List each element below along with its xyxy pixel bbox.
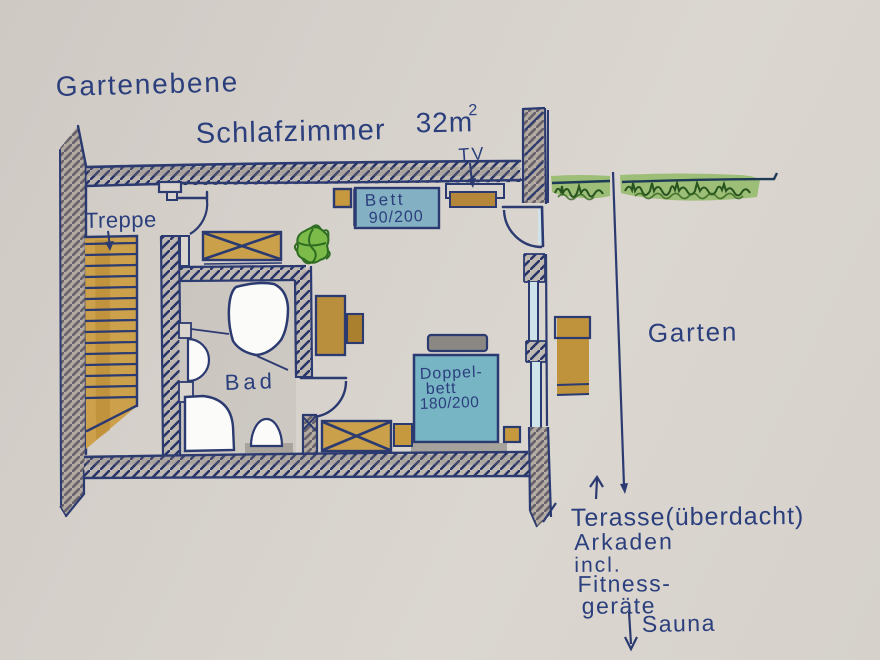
svg-text:Garten: Garten [648, 316, 739, 348]
svg-text:Arkaden: Arkaden [574, 528, 674, 555]
svg-text:Bett: Bett [364, 190, 405, 210]
svg-text:Terasse(überdacht): Terasse(überdacht) [571, 502, 805, 532]
svg-text:32m: 32m [415, 106, 473, 138]
svg-text:Treppe: Treppe [85, 207, 157, 233]
svg-text:90/200: 90/200 [369, 208, 424, 227]
svg-text:Gartenebene: Gartenebene [55, 66, 239, 102]
svg-text:2: 2 [468, 102, 477, 119]
svg-text:180/200: 180/200 [420, 394, 480, 413]
svg-text:Bad: Bad [224, 368, 276, 395]
svg-text:Sauna: Sauna [642, 610, 716, 637]
svg-text:TV: TV [458, 143, 486, 165]
svg-text:Schlafzimmer: Schlafzimmer [195, 114, 386, 150]
